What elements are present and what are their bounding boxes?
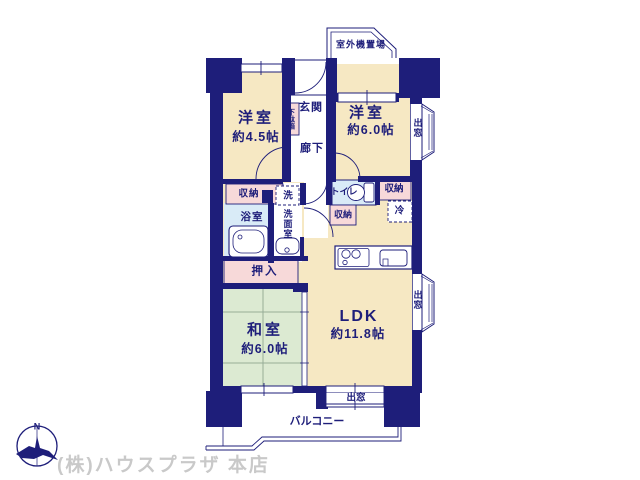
ldk-size: 約11.8帖 — [331, 328, 386, 341]
storage3-label: 収納 — [384, 184, 403, 194]
western-room2-size: 約6.0帖 — [347, 124, 394, 137]
washroom-label: 洗面室 — [283, 209, 292, 239]
toilet-label: トイレ — [330, 188, 357, 197]
compass — [16, 426, 58, 466]
compass-needle — [16, 436, 58, 460]
entrance-label: 玄関 — [299, 103, 323, 114]
japanese-room-name: 和室 — [247, 323, 283, 338]
shoe-cabinet-label: 下駄箱 — [288, 109, 295, 130]
refrigerator-label: 冷 — [395, 206, 406, 216]
balcony-label: バルコニー — [290, 417, 345, 428]
closet-label: 押入 — [252, 266, 279, 278]
compass-north-label: N — [34, 423, 41, 432]
wash-basin — [276, 238, 299, 254]
ldk-name: LDK — [340, 309, 379, 325]
japanese-room-size: 約6.0帖 — [241, 343, 288, 356]
bathroom-label: 浴室 — [241, 212, 264, 223]
storage2-label: 収納 — [334, 211, 352, 220]
hallway-label: 廊下 — [300, 144, 324, 155]
floorplan-drawing — [0, 0, 640, 480]
kitchen-counter — [335, 246, 412, 269]
bathtub — [229, 226, 268, 257]
laundry-label: 洗 — [283, 191, 293, 201]
western-room1-size: 約4.5帖 — [232, 131, 279, 144]
bay-window1-label: 出窓 — [413, 118, 422, 138]
bay-window2-label: 出窓 — [413, 290, 422, 310]
floorplan-image: 室外機置場 洋室 約4.5帖 玄関 下駄箱 廊下 洋室 約6.0帖 出窓 収納 … — [0, 0, 640, 480]
watermark: (株)ハウスプラザ 本店 — [57, 450, 270, 477]
outdoor-unit-label: 室外機置場 — [336, 41, 386, 50]
western-room2-name: 洋室 — [349, 106, 385, 121]
western-room1-name: 洋室 — [238, 111, 274, 126]
storage1-label: 収納 — [238, 189, 259, 199]
bay-window3-label: 出窓 — [346, 393, 365, 403]
balcony-outline — [206, 427, 401, 450]
